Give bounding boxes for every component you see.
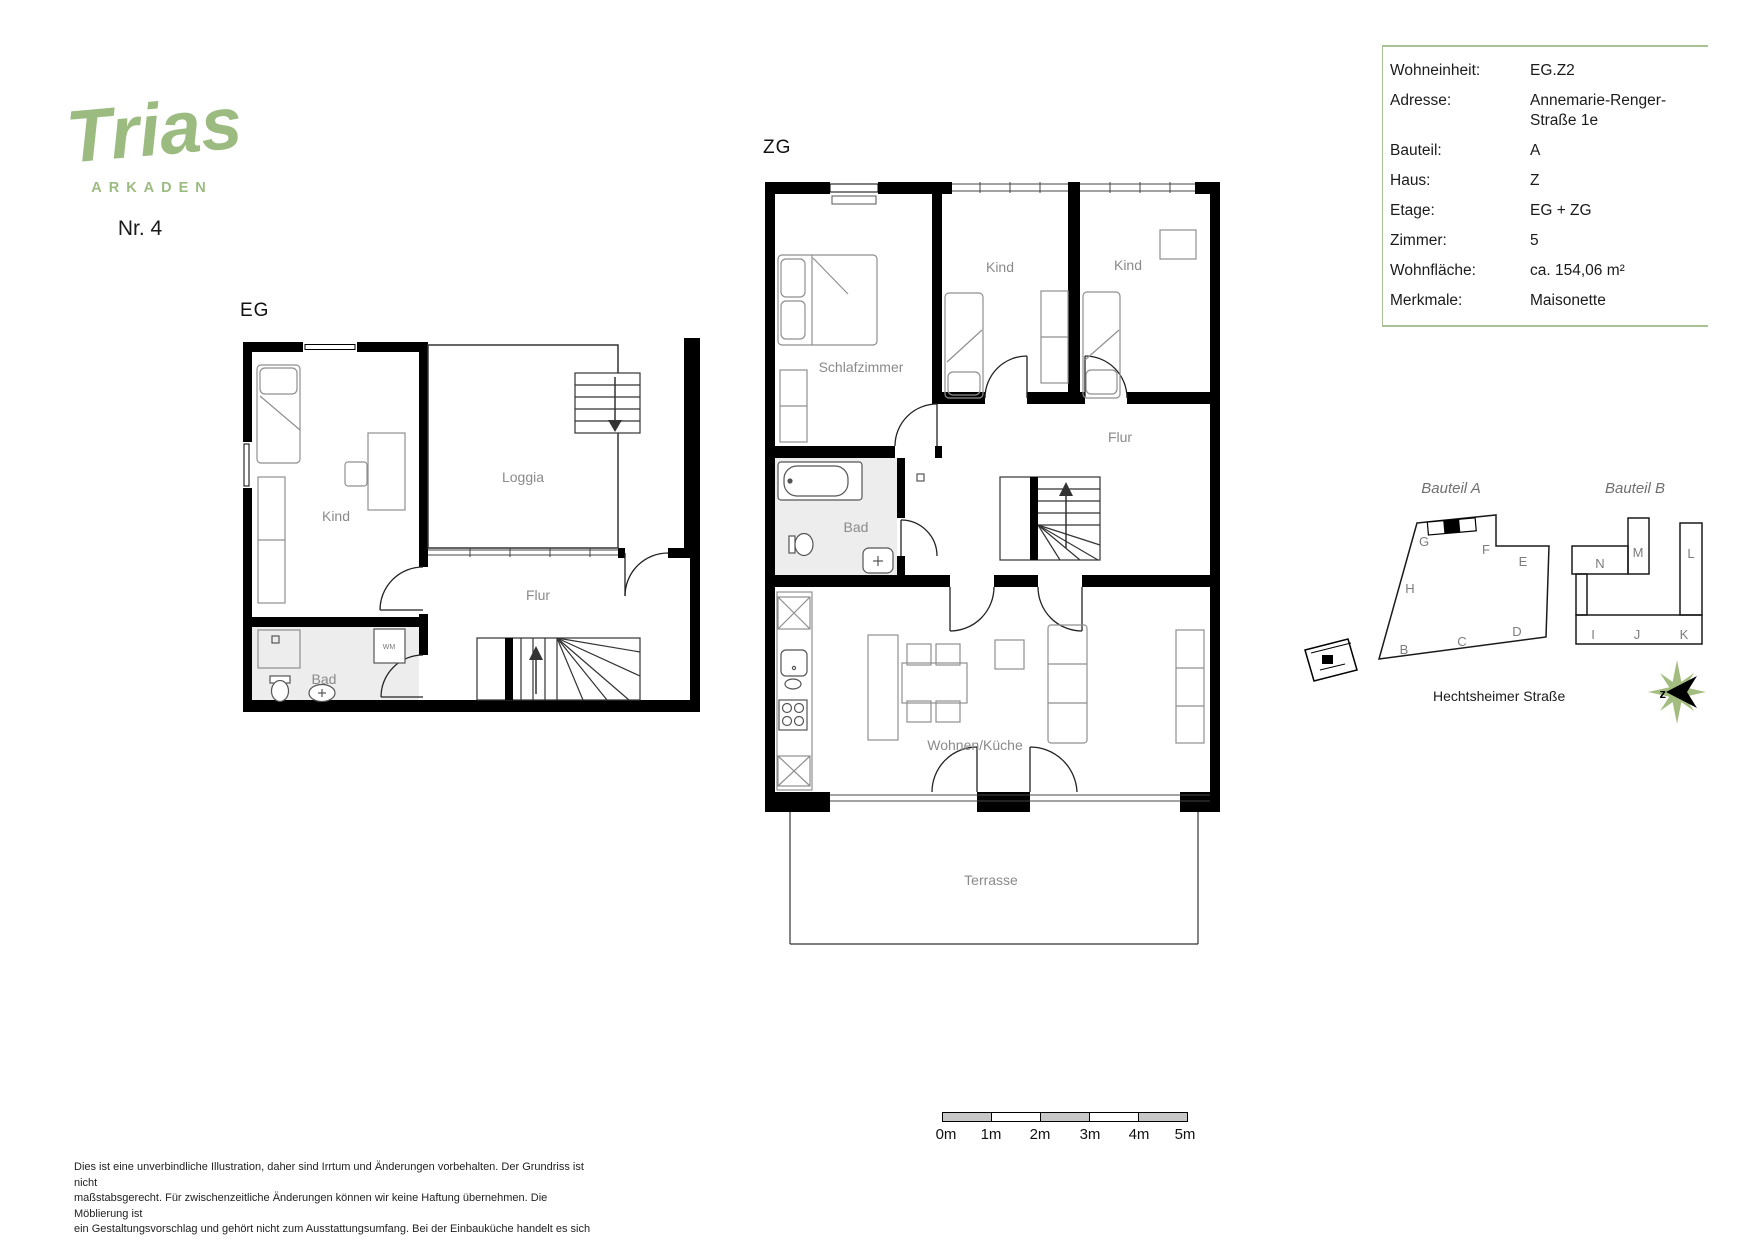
eg-floorplan: Kind Loggia Flur Bad WM — [230, 330, 710, 730]
eg-furniture — [257, 365, 405, 603]
bauteil-b-outline — [1572, 518, 1702, 644]
info-value: 5 — [1530, 231, 1708, 251]
info-label: Wohneinheit: — [1390, 61, 1530, 81]
house-letter: N — [1595, 556, 1604, 571]
island — [868, 635, 898, 740]
info-label: Bauteil: — [1390, 141, 1530, 161]
zg-room-label-wohnen: Wohnen/Küche — [927, 737, 1023, 753]
info-row-wohneinheit: Wohneinheit: EG.Z2 — [1390, 61, 1708, 81]
info-row-haus: Haus: Z — [1390, 171, 1708, 191]
brand-sub: ARKADEN — [91, 180, 213, 196]
house-letter: L — [1687, 546, 1694, 561]
eg-room-label-loggia: Loggia — [502, 469, 544, 485]
house-letter: J — [1634, 627, 1641, 642]
info-value: EG + ZG — [1530, 201, 1708, 221]
disclaimer-text: Dies ist eine unverbindliche Illustratio… — [74, 1160, 594, 1240]
scale-bar — [942, 1112, 1188, 1122]
zg-doors — [895, 356, 1127, 792]
floorplan-sheet: Trias ARKADEN Nr. 4 Wohneinheit: EG.Z2 A… — [0, 0, 1754, 1240]
house-letter: G — [1419, 534, 1429, 549]
kitchen-cabinet-2 — [778, 756, 810, 786]
toilet — [272, 681, 289, 702]
scale-tick-label: 4m — [1129, 1126, 1150, 1143]
info-label: Etage: — [1390, 201, 1530, 221]
info-row-zimmer: Zimmer: 5 — [1390, 231, 1708, 251]
scale-tick-label: 3m — [1080, 1126, 1101, 1143]
compass-north-label: z — [1660, 686, 1667, 701]
info-value: ca. 154,06 m² — [1530, 261, 1708, 281]
kitchen-cabinet-1 — [778, 597, 810, 629]
eg-bed — [257, 365, 300, 463]
eg-exterior-stair — [575, 373, 640, 433]
eg-wardrobe — [258, 477, 285, 603]
eg-room-label-bad: Bad — [312, 671, 337, 687]
info-value: Maisonette — [1530, 291, 1708, 311]
double-bed — [778, 255, 877, 345]
bauteil-b-title: Bauteil B — [1580, 480, 1690, 497]
unit-location-marker — [1427, 518, 1476, 535]
house-letter: K — [1680, 627, 1689, 642]
info-label: Wohnfläche: — [1390, 261, 1530, 281]
kind2-desk — [1160, 230, 1196, 259]
house-letter: H — [1405, 581, 1414, 596]
scale-tick-label: 1m — [981, 1126, 1002, 1143]
info-value: Annemarie-Renger- Straße 1e — [1530, 91, 1708, 131]
info-value: Z — [1530, 171, 1708, 191]
zg-room-label-bad: Bad — [844, 519, 869, 535]
house-letter: I — [1591, 627, 1595, 642]
sofa — [1048, 625, 1087, 743]
info-label: Zimmer: — [1390, 231, 1530, 251]
info-label: Adresse: — [1390, 91, 1530, 131]
dining-table — [902, 644, 967, 722]
info-label: Merkmale: — [1390, 291, 1530, 311]
street-label: Hechtsheimer Straße — [1433, 688, 1565, 704]
eg-desk — [345, 433, 405, 510]
info-row-adresse: Adresse: Annemarie-Renger- Straße 1e — [1390, 91, 1708, 131]
brand-logo: Trias ARKADEN Nr. 4 — [30, 55, 310, 245]
zg-floorplan: Schlafzimmer Kind Kind Flur Bad Wohnen/K… — [758, 160, 1228, 960]
house-letter: B — [1400, 642, 1409, 657]
mini-building-icon — [1305, 639, 1357, 681]
bauteil-a-title: Bauteil A — [1396, 480, 1506, 497]
unit-info-table: Wohneinheit: EG.Z2 Adresse: Annemarie-Re… — [1382, 45, 1708, 327]
info-value: EG.Z2 — [1530, 61, 1708, 81]
zg-room-label-kind1: Kind — [986, 259, 1014, 275]
armchair — [995, 640, 1024, 669]
info-row-etage: Etage: EG + ZG — [1390, 201, 1708, 221]
house-letter: C — [1457, 634, 1466, 649]
wall-switch — [917, 474, 924, 481]
house-letter: M — [1633, 545, 1644, 560]
house-letter: E — [1519, 554, 1528, 569]
toilet — [795, 534, 813, 556]
eg-room-label-kind: Kind — [322, 508, 350, 524]
info-value: A — [1530, 141, 1708, 161]
info-row-merkmale: Merkmale: Maisonette — [1390, 291, 1708, 311]
brand-name: Trias — [63, 81, 245, 179]
site-plan: G F E H B C D N M L I J K — [1290, 505, 1754, 745]
info-row-wohnflaeche: Wohnfläche: ca. 154,06 m² — [1390, 261, 1708, 281]
info-row-bauteil: Bauteil: A — [1390, 141, 1708, 161]
bauteil-a-outline: G F E H B C D — [1379, 515, 1549, 659]
scale-tick-label: 2m — [1030, 1126, 1051, 1143]
compass-icon: z — [1648, 660, 1706, 724]
stove — [779, 700, 807, 730]
eg-glazing — [428, 548, 618, 557]
kitchen-sink — [781, 650, 807, 689]
zg-stair — [1000, 477, 1100, 560]
eg-room-label-flur: Flur — [526, 587, 550, 603]
eg-plan-title: EG — [240, 300, 269, 322]
zg-room-label-terrasse: Terrasse — [964, 872, 1018, 888]
wm-label: WM — [383, 644, 396, 651]
scale-tick-label: 5m — [1175, 1126, 1196, 1143]
house-letter: F — [1482, 542, 1490, 557]
eg-stair — [477, 638, 640, 700]
zg-room-label-flur: Flur — [1108, 429, 1132, 445]
toilet-tank — [789, 536, 795, 553]
zg-room-label-schlafzimmer: Schlafzimmer — [819, 359, 904, 375]
house-letter: D — [1512, 624, 1521, 639]
info-label: Haus: — [1390, 171, 1530, 191]
zg-room-label-kind2: Kind — [1114, 257, 1142, 273]
unit-number: Nr. 4 — [118, 217, 163, 240]
kind2-bed — [1083, 292, 1120, 398]
zg-plan-title: ZG — [763, 137, 791, 159]
kind1-bed — [945, 293, 983, 398]
scale-tick-label: 0m — [936, 1126, 957, 1143]
sideboard — [1176, 630, 1204, 743]
